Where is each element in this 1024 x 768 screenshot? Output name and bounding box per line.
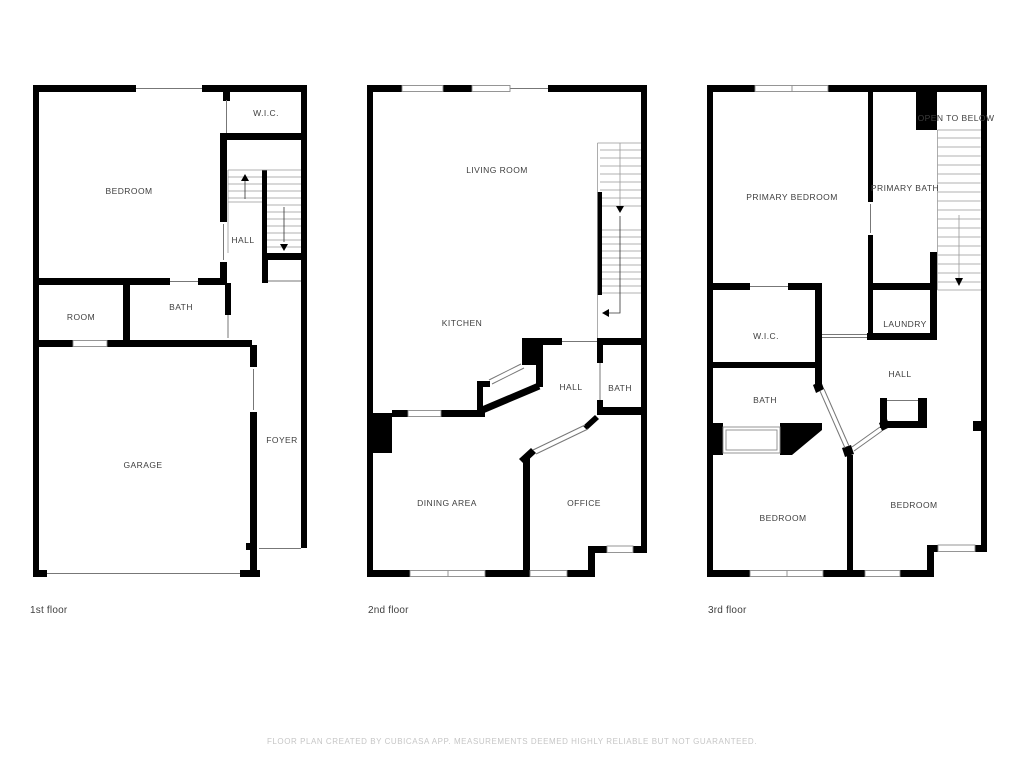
room-label-bath-f2: BATH [608, 383, 632, 393]
footer-disclaimer: FLOOR PLAN CREATED BY CUBICASA APP. MEAS… [0, 737, 1024, 746]
room-label-bath-f3: BATH [753, 395, 777, 405]
room-label-primary-bath-f3: PRIMARY BATH [871, 183, 939, 193]
room-label-foyer-f1: FOYER [266, 435, 298, 445]
stair-arrow-down-icon [616, 206, 624, 213]
room-label-laundry-f3: LAUNDRY [883, 319, 927, 329]
floor3-walls [707, 85, 987, 577]
room-label-open-to-below-f3: OPEN TO BELOW [918, 113, 995, 123]
floor-caption-1: 1st floor [30, 605, 67, 616]
room-label-office-f2: OFFICE [567, 498, 601, 508]
room-label-wic-f3: W.I.C. [753, 331, 779, 341]
stair-arrow-down-icon [280, 244, 288, 251]
floor1-openings [47, 89, 301, 574]
room-label-garage-f1: GARAGE [123, 460, 162, 470]
floor2-walls [367, 85, 647, 577]
stair-arrow-left-icon [602, 309, 609, 317]
room-label-primary-bedroom-f3: PRIMARY BEDROOM [746, 192, 837, 202]
floor1-windows [73, 341, 107, 347]
room-label-wic-f1: W.I.C. [253, 108, 279, 118]
room-label-dining-area-f2: DINING AREA [417, 498, 477, 508]
floorplan-canvas: W.I.C. BEDROOM HALL ROOM BATH GARAGE FOY… [0, 0, 1024, 768]
room-label-hall-f2: HALL [559, 382, 582, 392]
room-label-bath-f1: BATH [169, 302, 193, 312]
floor3-stairs [938, 130, 982, 290]
room-label-bedroom-f1: BEDROOM [105, 186, 152, 196]
floorplans-svg [0, 0, 1024, 768]
room-label-living-room-f2: LIVING ROOM [466, 165, 528, 175]
stair-arrow-up-icon [241, 174, 249, 181]
floor2-stairs [598, 143, 642, 338]
floor1-walls [33, 85, 307, 577]
floor-caption-3: 3rd floor [708, 605, 747, 616]
room-label-room-f1: ROOM [67, 312, 95, 322]
room-label-hall-f3: HALL [888, 369, 911, 379]
room-label-bedroom-right-f3: BEDROOM [890, 500, 937, 510]
room-label-bedroom-left-f3: BEDROOM [759, 513, 806, 523]
floor-caption-2: 2nd floor [368, 605, 409, 616]
floor2-kitchen-diagonal-wall [480, 386, 539, 411]
room-label-kitchen-f2: KITCHEN [442, 318, 482, 328]
room-label-hall-f1: HALL [231, 235, 254, 245]
